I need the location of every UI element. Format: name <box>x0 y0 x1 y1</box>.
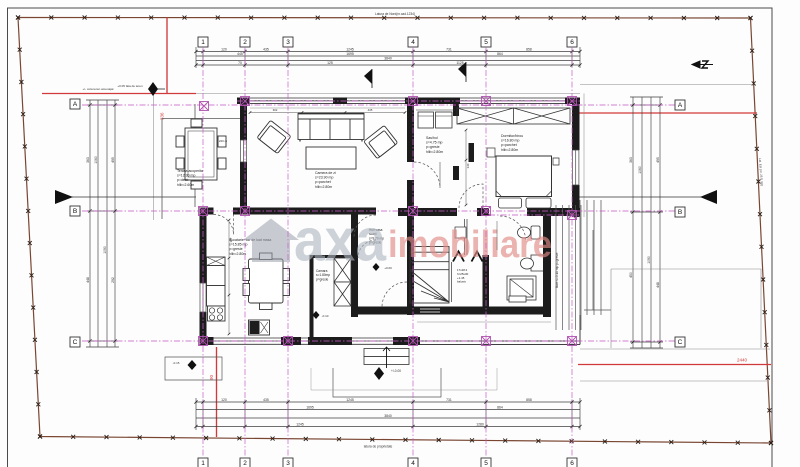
svg-text:A: A <box>73 101 78 108</box>
svg-text:864: 864 <box>497 52 503 56</box>
svg-text:495: 495 <box>656 157 660 163</box>
svg-text:3840: 3840 <box>384 414 392 418</box>
svg-text:90: 90 <box>209 374 214 380</box>
svg-text:2: 2 <box>243 460 247 467</box>
svg-text:220 m: 220 m <box>219 139 228 143</box>
svg-text:5: 5 <box>484 460 488 467</box>
svg-text:864: 864 <box>497 405 503 409</box>
svg-text:1245: 1245 <box>346 398 354 402</box>
svg-text:70: 70 <box>238 61 242 65</box>
svg-text:6: 6 <box>570 39 574 46</box>
svg-text:1695: 1695 <box>346 52 354 56</box>
svg-text:340: 340 <box>466 163 470 168</box>
svg-text:Latura de Nord(nr.cad.1234): Latura de Nord(nr.cad.1234) <box>375 12 415 16</box>
svg-text:125: 125 <box>327 61 333 65</box>
svg-text:B: B <box>73 208 77 215</box>
svg-text:1090: 1090 <box>103 246 107 254</box>
svg-text:120: 120 <box>221 47 227 51</box>
svg-text:4: 4 <box>411 39 415 46</box>
svg-text:A: A <box>678 102 683 109</box>
svg-text:363: 363 <box>629 157 633 163</box>
svg-text:292: 292 <box>111 277 115 283</box>
svg-text:377: 377 <box>229 237 233 242</box>
svg-text:1125: 1125 <box>456 61 463 65</box>
svg-text:axa: axa <box>294 207 387 274</box>
svg-text:B: B <box>678 209 682 216</box>
svg-text:435: 435 <box>263 47 269 51</box>
svg-text:6: 6 <box>570 460 574 467</box>
svg-text:-0.10: -0.10 <box>322 314 329 318</box>
svg-text:1280: 1280 <box>476 422 484 426</box>
svg-text:1: 1 <box>201 39 205 46</box>
svg-text:445: 445 <box>368 108 373 112</box>
svg-text:435: 435 <box>263 398 269 402</box>
svg-text:+/- cota teren amenajat: +/- cota teren amenajat <box>83 87 114 91</box>
svg-text:C: C <box>73 339 78 346</box>
svg-text:1: 1 <box>201 460 205 467</box>
svg-text:1245: 1245 <box>346 47 354 51</box>
svg-text:731: 731 <box>446 398 452 402</box>
svg-text:302: 302 <box>273 108 278 112</box>
svg-text:2: 2 <box>243 39 247 46</box>
svg-text:+0.05 fata de teren: +0.05 fata de teren <box>117 84 143 88</box>
svg-text:1090: 1090 <box>647 256 651 264</box>
svg-text:731: 731 <box>446 47 452 51</box>
svg-text:3: 3 <box>286 460 290 467</box>
svg-text:448: 448 <box>656 282 660 288</box>
svg-text:3840: 3840 <box>384 56 392 60</box>
svg-text:2440: 2440 <box>737 358 748 363</box>
svg-text:858: 858 <box>526 47 532 51</box>
svg-text:5: 5 <box>484 39 488 46</box>
svg-text:450: 450 <box>629 272 633 278</box>
svg-text:+/-0.00: +/-0.00 <box>391 369 401 373</box>
svg-text:4: 4 <box>411 460 415 467</box>
svg-text:1245: 1245 <box>296 422 304 426</box>
svg-text:120: 120 <box>221 398 227 402</box>
svg-text:363: 363 <box>86 157 90 163</box>
svg-text:3: 3 <box>286 39 290 46</box>
svg-text:latura de proprietate: latura de proprietate <box>364 445 393 449</box>
svg-text:1695: 1695 <box>306 405 314 409</box>
svg-text:858: 858 <box>526 398 532 402</box>
svg-text:Baie s=5.10 mp p=gresie: Baie s=5.10 mp p=gresie <box>555 252 559 288</box>
svg-text:-0.15: -0.15 <box>173 361 180 365</box>
svg-text:C: C <box>678 339 683 346</box>
svg-text:495: 495 <box>111 157 115 163</box>
svg-text:445: 445 <box>237 52 243 56</box>
svg-text:448: 448 <box>86 277 90 283</box>
svg-text:1060: 1060 <box>638 166 642 174</box>
svg-text:1060: 1060 <box>94 156 98 164</box>
